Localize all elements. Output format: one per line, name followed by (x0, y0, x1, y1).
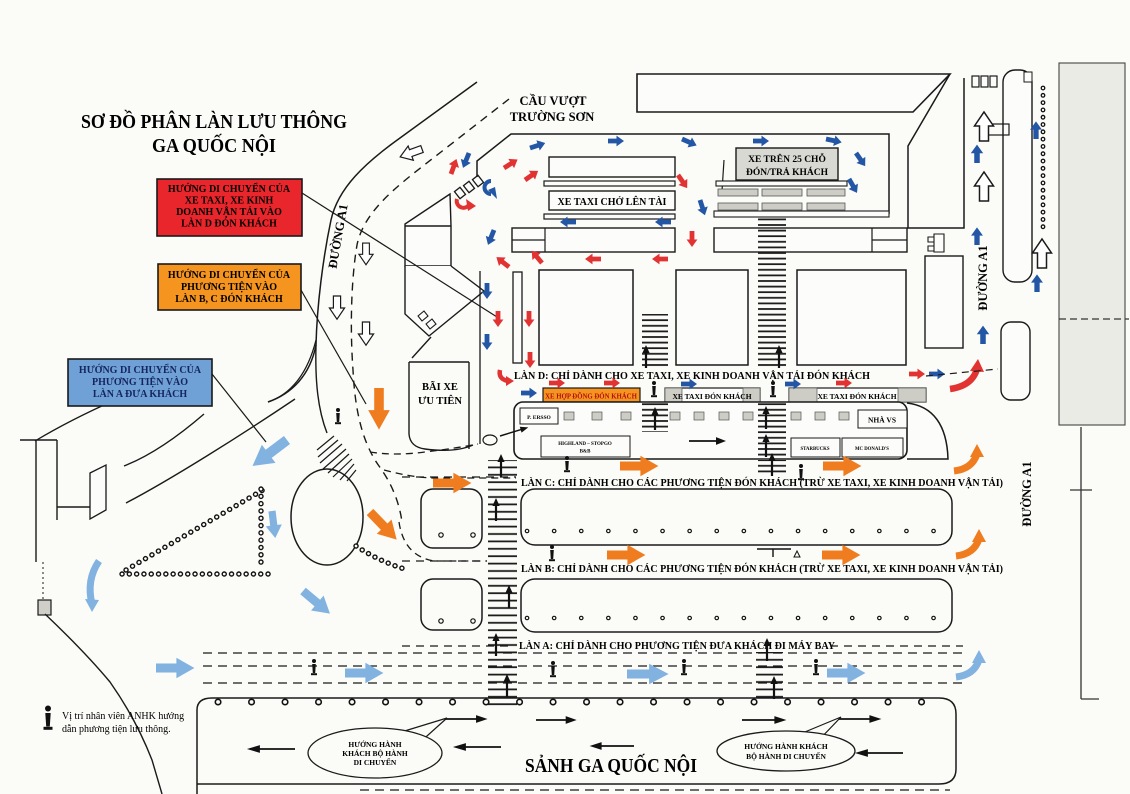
svg-text:ĐƯỜNG A1: ĐƯỜNG A1 (976, 245, 990, 310)
svg-text:GA QUỐC NỘI: GA QUỐC NỘI (152, 133, 276, 157)
svg-text:LÀN D: CHỈ DÀNH CHO XE TAXI, X: LÀN D: CHỈ DÀNH CHO XE TAXI, XE KINH DOA… (514, 369, 870, 382)
svg-text:XE TAXI CHỞ LÊN TÀI: XE TAXI CHỞ LÊN TÀI (558, 196, 667, 208)
svg-text:LÀN D ĐÓN KHÁCH: LÀN D ĐÓN KHÁCH (181, 218, 277, 230)
svg-text:ƯU TIÊN: ƯU TIÊN (418, 395, 462, 407)
svg-text:HƯỚNG HÀNH KHÁCH: HƯỚNG HÀNH KHÁCH (744, 741, 828, 751)
svg-text:DI CHUYỂN: DI CHUYỂN (354, 757, 397, 767)
svg-text:HƯỚNG DI CHUYỂN CỦA: HƯỚNG DI CHUYỂN CỦA (168, 268, 291, 281)
svg-text:SẢNH GA QUỐC NỘI: SẢNH GA QUỐC NỘI (525, 753, 697, 777)
svg-text:BỘ HÀNH DI CHUYỂN: BỘ HÀNH DI CHUYỂN (746, 751, 826, 761)
svg-text:STARBUCKS: STARBUCKS (801, 447, 830, 452)
svg-text:LÀN B: CHỈ DÀNH CHO CÁC PHƯƠNG: LÀN B: CHỈ DÀNH CHO CÁC PHƯƠNG TIỆN ĐÓN … (521, 562, 1003, 575)
svg-text:CẦU VƯỢT: CẦU VƯỢT (519, 93, 587, 108)
svg-text:XE HỢP ĐỒNG ĐÓN KHÁCH: XE HỢP ĐỒNG ĐÓN KHÁCH (545, 393, 637, 401)
svg-text:ĐÓN/TRẢ KHÁCH: ĐÓN/TRẢ KHÁCH (746, 166, 829, 178)
svg-text:XE TAXI ĐÓN KHÁCH: XE TAXI ĐÓN KHÁCH (672, 391, 751, 401)
svg-text:HƯỚNG DI CHUYỂN CỦA: HƯỚNG DI CHUYỂN CỦA (79, 363, 202, 376)
svg-text:DOANH VẬN TẢI VÀO: DOANH VẬN TẢI VÀO (176, 205, 282, 218)
svg-text:HƯỚNG HÀNH: HƯỚNG HÀNH (348, 739, 401, 749)
svg-text:PHƯƠNG TIỆN VÀO: PHƯƠNG TIỆN VÀO (181, 280, 277, 293)
svg-text:HƯỚNG DI CHUYỂN CỦA: HƯỚNG DI CHUYỂN CỦA (168, 182, 291, 195)
svg-text:NHÀ VS: NHÀ VS (868, 415, 896, 425)
svg-text:LÀN C: CHỈ DÀNH CHO CÁC PHƯƠNG: LÀN C: CHỈ DÀNH CHO CÁC PHƯƠNG TIỆN ĐÓN … (521, 476, 1003, 489)
svg-text:LÀN A: CHỈ DÀNH CHO PHƯƠNG TIỆ: LÀN A: CHỈ DÀNH CHO PHƯƠNG TIỆN ĐƯA KHÁC… (519, 639, 835, 652)
svg-text:ĐƯỜNG A1: ĐƯỜNG A1 (1020, 461, 1034, 526)
svg-text:TRƯỜNG SƠN: TRƯỜNG SƠN (510, 110, 595, 124)
svg-text:P. ERSSO: P. ERSSO (527, 415, 551, 421)
svg-text:dẫn phương tiện lưu thông.: dẫn phương tiện lưu thông. (62, 724, 171, 735)
svg-text:SƠ ĐỒ PHÂN LÀN LƯU THÔNG: SƠ ĐỒ PHÂN LÀN LƯU THÔNG (81, 109, 347, 133)
svg-text:MC DONALD'S: MC DONALD'S (855, 447, 889, 452)
svg-text:XE TAXI ĐÓN KHÁCH: XE TAXI ĐÓN KHÁCH (817, 391, 896, 401)
svg-text:PHƯƠNG TIỆN VÀO: PHƯƠNG TIỆN VÀO (92, 375, 188, 388)
svg-text:BÃI XE: BÃI XE (422, 381, 458, 393)
svg-text:B&B: B&B (580, 450, 592, 455)
svg-text:HIGHLAND – STOPGO: HIGHLAND – STOPGO (558, 442, 612, 447)
svg-text:LÀN B, C ĐÓN KHÁCH: LÀN B, C ĐÓN KHÁCH (175, 293, 283, 305)
svg-text:LÀN A ĐƯA KHÁCH: LÀN A ĐƯA KHÁCH (93, 388, 188, 400)
svg-text:XE TAXI, XE KINH: XE TAXI, XE KINH (185, 196, 274, 207)
svg-text:Vị trí nhân viên ANHK hướng: Vị trí nhân viên ANHK hướng (62, 711, 184, 722)
svg-text:KHÁCH BỘ HÀNH: KHÁCH BỘ HÀNH (342, 748, 408, 758)
